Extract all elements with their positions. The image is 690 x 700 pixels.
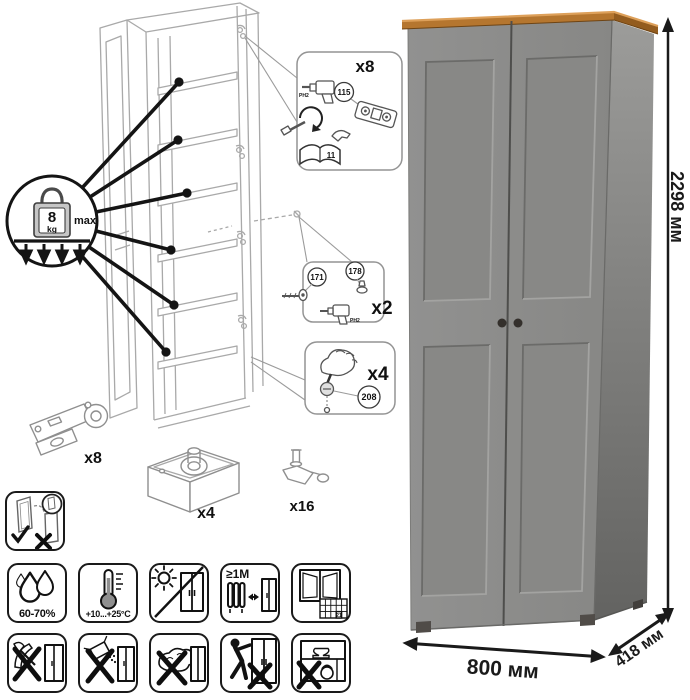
temperature-label: +10...+25°C (80, 609, 136, 619)
dimension-height: 2298 мм (662, 17, 687, 623)
care-icon-do-not-push (220, 633, 280, 693)
part-number-208: 208 (361, 392, 376, 402)
screw-icon (282, 290, 307, 301)
load-limit-unit: kg (47, 224, 57, 234)
care-icon-do-not-overload (291, 633, 351, 693)
calendar: 21 (320, 599, 347, 619)
cam-callout-box: 208 x4 (305, 342, 395, 414)
dimension-width-label: 800 мм (466, 655, 539, 683)
cam-lock-qty: x4 (197, 505, 215, 522)
calendar-day: 21 (336, 613, 342, 619)
anvil (313, 649, 329, 659)
cabinet-line-drawing (100, 3, 300, 428)
drill-bit-label: PH2 (299, 93, 309, 99)
shelf-pin-qty: x16 (289, 498, 314, 515)
cam-callout-qty: x4 (367, 364, 389, 385)
care-icon-door-handling (5, 491, 65, 551)
left-door-knob (498, 319, 507, 328)
hardware-hinge: x8 (30, 402, 108, 467)
wardrobe (402, 12, 658, 633)
cam-position-dashed-line (254, 215, 292, 221)
manual-page-number: 11 (327, 151, 336, 160)
hardware-cam-lock-box: x4 (148, 448, 239, 522)
part-number-171: 171 (310, 273, 324, 282)
humidity-label: 60-70% (9, 608, 65, 620)
assembly-diagram: 8 kg max x8 PH2 115 (0, 0, 410, 535)
care-icon-no-direct-sunlight (149, 563, 209, 623)
distance-label: ≥1М (226, 567, 249, 581)
dimension-width: 800 мм (400, 636, 606, 688)
product-photo: 2298 мм 800 мм 418 мм (390, 0, 690, 700)
care-icon-ventilation: 21 (291, 563, 351, 623)
manual-book-icon: 11 (300, 145, 340, 164)
right-door-knob (514, 319, 523, 328)
load-limit-max: max (74, 215, 97, 227)
care-icon-temperature: +10...+25°C (78, 563, 138, 623)
drill-bit-label-2: PH2 (350, 318, 360, 324)
care-icon-no-wet-sponge (149, 633, 209, 693)
fitting-callout-box: 171 178 PH2 x2 (282, 262, 393, 324)
care-icon-no-abrasive-cleaner (78, 633, 138, 693)
shelves (158, 72, 237, 369)
care-icon-no-sharp-tools (7, 633, 67, 693)
open-door-outline (100, 20, 137, 418)
care-icon-heater-distance: ≥1М (220, 563, 280, 623)
part-number-115: 115 (338, 88, 351, 97)
care-icon-humidity: 60-70% (7, 563, 67, 623)
hinge-qty: x8 (84, 450, 102, 467)
hinge-callout-box: x8 PH2 115 (281, 52, 402, 170)
hinge-marks (236, 25, 246, 328)
part-number-178: 178 (348, 267, 362, 276)
hinge-callout-qty: x8 (356, 57, 375, 76)
instruction-sheet: 8 kg max x8 PH2 115 (0, 0, 690, 700)
person-figure (231, 639, 251, 679)
door-handling-icon (7, 493, 63, 549)
dimension-height-label: 2298 мм (667, 171, 687, 243)
dimension-depth: 418 мм (608, 612, 670, 671)
hardware-shelf-pin: x16 (283, 450, 329, 515)
